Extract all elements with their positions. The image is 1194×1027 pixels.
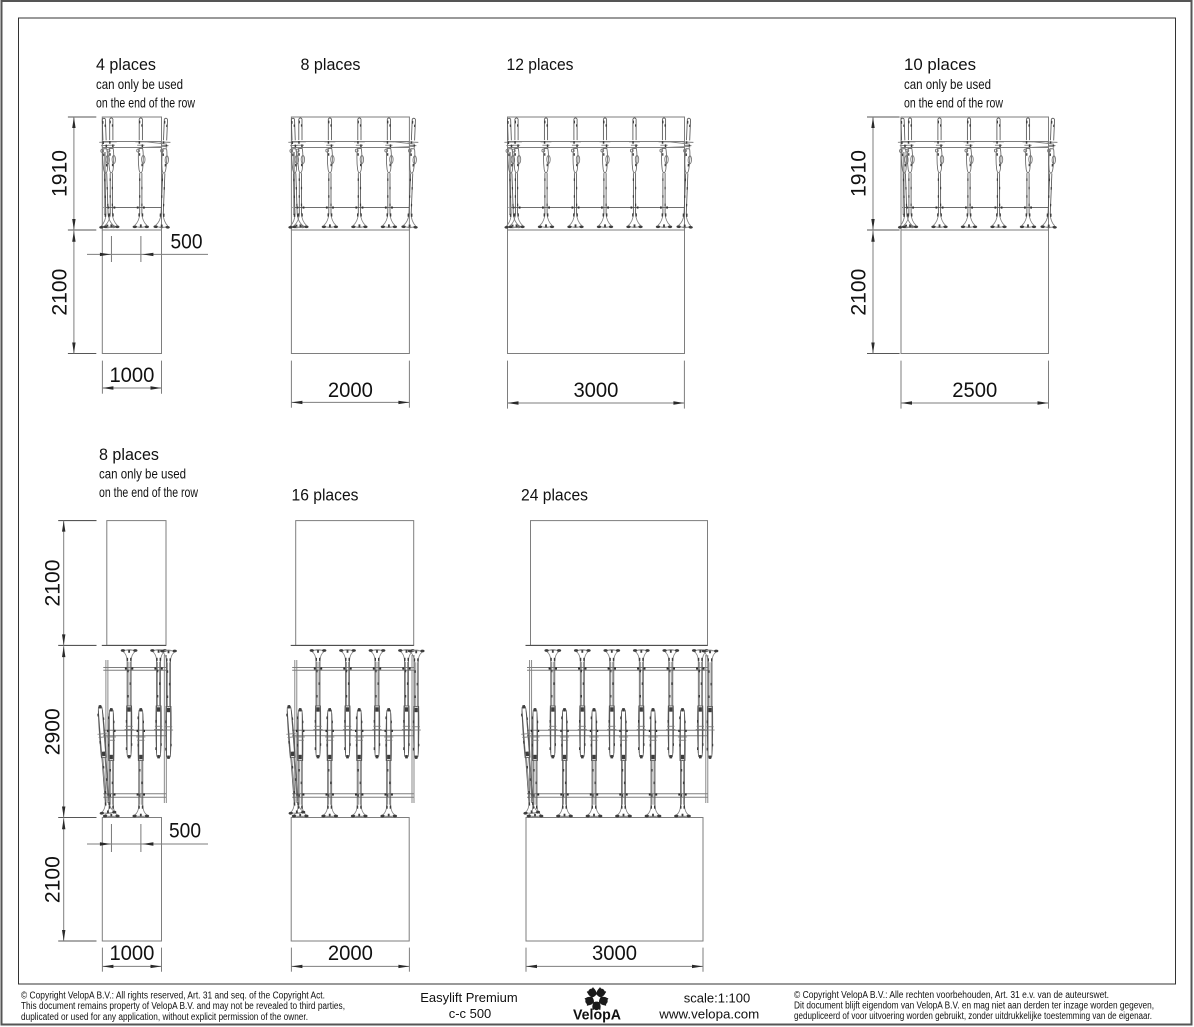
svg-text:10 places: 10 places: [904, 55, 976, 74]
svg-text:VelopA: VelopA: [573, 1008, 622, 1024]
svg-text:on the end of the row: on the end of the row: [99, 484, 199, 500]
svg-text:can only be used: can only be used: [96, 76, 183, 92]
svg-text:16 places: 16 places: [292, 486, 359, 505]
svg-text:www.velopa.com: www.velopa.com: [658, 1006, 759, 1021]
svg-text:2500: 2500: [952, 379, 997, 402]
svg-text:24 places: 24 places: [521, 486, 588, 505]
svg-text:Dit document blijft eigendom v: Dit document blijft eigendom van VelopA …: [794, 1001, 1154, 1012]
svg-text:1910: 1910: [49, 150, 72, 197]
svg-text:gedupliceerd of voor uitvoerin: gedupliceerd of voor uitvoering worden g…: [794, 1011, 1152, 1022]
svg-text:2000: 2000: [328, 942, 373, 965]
svg-text:1910: 1910: [848, 150, 871, 197]
svg-text:can only be used: can only be used: [904, 76, 991, 92]
svg-text:8 places: 8 places: [301, 55, 361, 74]
svg-text:3000: 3000: [592, 942, 637, 965]
svg-text:2900: 2900: [42, 708, 65, 755]
svg-text:scale:1:100: scale:1:100: [684, 990, 751, 1005]
svg-text:on the end of the row: on the end of the row: [904, 95, 1004, 111]
svg-text:c-c 500: c-c 500: [449, 1006, 492, 1021]
svg-text:on the end of the row: on the end of the row: [96, 95, 196, 111]
svg-text:This document remains property: This document remains property of VelopA…: [21, 1001, 345, 1012]
svg-text:2100: 2100: [49, 269, 72, 316]
svg-text:1000: 1000: [109, 364, 154, 387]
svg-text:8 places: 8 places: [99, 445, 159, 464]
svg-text:Easylift Premium: Easylift Premium: [420, 990, 518, 1005]
svg-text:500: 500: [169, 819, 201, 842]
svg-text:2100: 2100: [42, 560, 65, 607]
svg-text:duplicated or used for any app: duplicated or used for any application, …: [21, 1012, 308, 1023]
svg-text:2100: 2100: [42, 856, 65, 903]
svg-text:can only be used: can only be used: [99, 466, 186, 482]
svg-text:© Copyright VelopA B.V.: All: © Copyright VelopA B.V.: All rights rese…: [21, 991, 325, 1002]
svg-text:1000: 1000: [109, 942, 154, 965]
svg-text:12 places: 12 places: [507, 55, 574, 74]
svg-text:3000: 3000: [573, 379, 618, 402]
svg-text:4 places: 4 places: [96, 55, 156, 74]
svg-text:2000: 2000: [328, 379, 373, 402]
svg-text:2100: 2100: [848, 269, 871, 316]
svg-text:500: 500: [171, 231, 203, 254]
svg-text:© Copyright VelopA B.V.: Alle: © Copyright VelopA B.V.: Alle rechten vo…: [794, 990, 1109, 1001]
